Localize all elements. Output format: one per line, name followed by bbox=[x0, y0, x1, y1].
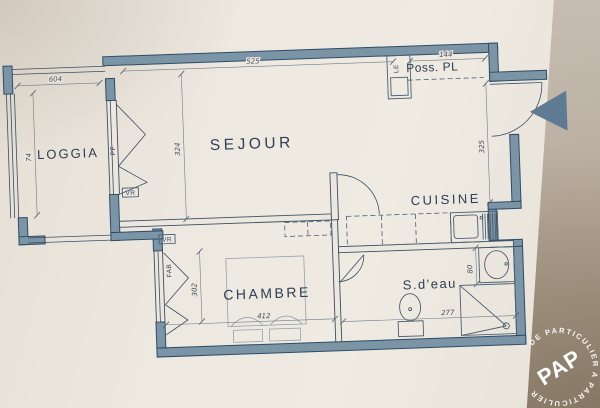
watermark-brand: PAP bbox=[533, 344, 586, 390]
photo-of-floor-plan: 604 74 525 144 324 325 302 412 277 80 LO… bbox=[0, 0, 600, 408]
pap-watermark: DE PARTICULIER A PARTICULIER PAP bbox=[0, 0, 600, 408]
